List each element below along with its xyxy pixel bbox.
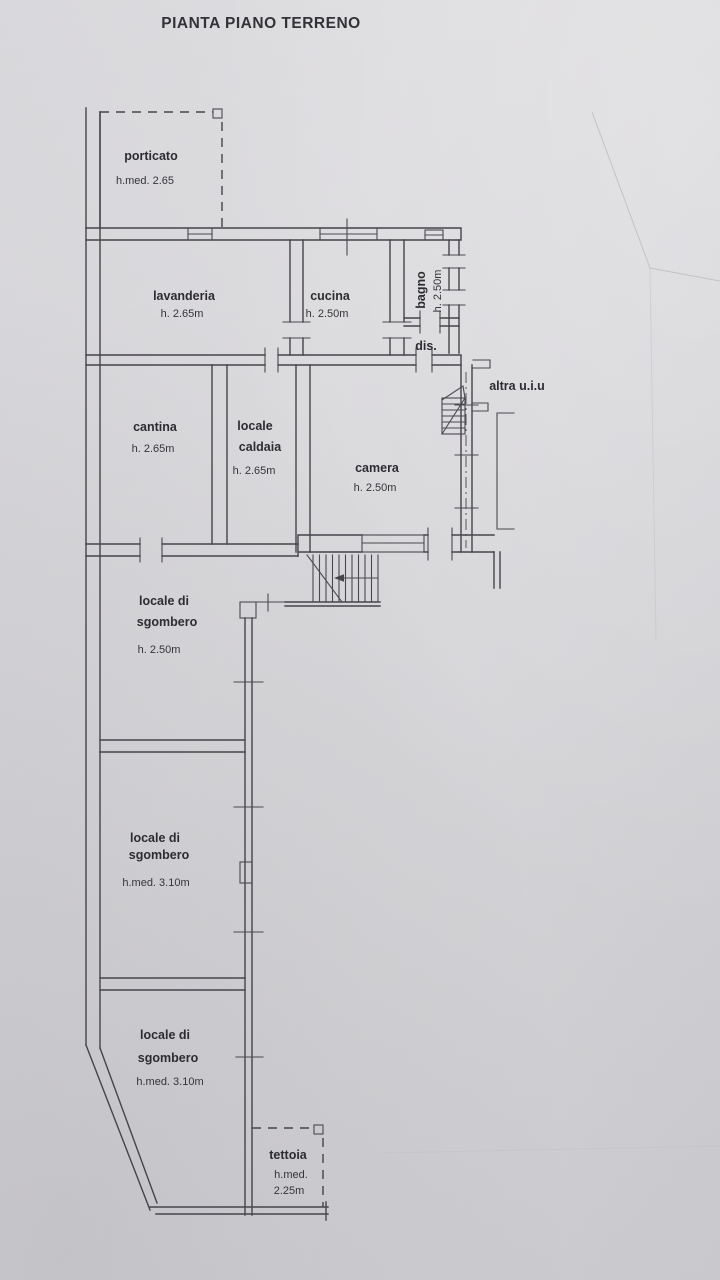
row2-bottom-wall bbox=[86, 528, 500, 588]
room-height: h.med. bbox=[274, 1169, 308, 1181]
sgombero-column-walls bbox=[100, 618, 263, 1215]
room-height: h. 2.50m bbox=[354, 482, 397, 494]
room-name: porticato bbox=[124, 149, 178, 163]
room-height: h. 2.50m bbox=[432, 270, 444, 313]
room-name: bagno bbox=[414, 271, 428, 309]
room-name: sgombero bbox=[138, 1051, 199, 1065]
floor-plan-svg: PIANTA PIANO TERRENO bbox=[0, 0, 720, 1280]
room-height: h. 2.65m bbox=[132, 443, 175, 455]
page-title: PIANTA PIANO TERRENO bbox=[161, 15, 360, 32]
top-exterior-wall bbox=[86, 219, 461, 255]
main-stair bbox=[240, 555, 380, 618]
room-label-tettoia: tettoia h.med. 2.25m bbox=[269, 1148, 308, 1197]
room-name: locale bbox=[237, 419, 272, 433]
room-label-lavanderia: lavanderia h. 2.65m bbox=[153, 289, 216, 320]
room-name: lavanderia bbox=[153, 289, 216, 303]
room-name: locale di bbox=[140, 1028, 190, 1042]
room-height: h.med. 2.65 bbox=[116, 175, 174, 187]
room-name: cucina bbox=[310, 289, 351, 303]
window-symbol bbox=[188, 228, 212, 240]
room-name: sgombero bbox=[129, 848, 190, 862]
room-name: dis. bbox=[415, 339, 437, 353]
room-height: h. 2.65m bbox=[161, 308, 204, 320]
room-label-porticato: porticato h.med. 2.65 bbox=[116, 149, 178, 187]
room-label-camera: camera h. 2.50m bbox=[354, 461, 400, 494]
room-name: cantina bbox=[133, 420, 178, 434]
wall-pillar bbox=[240, 862, 252, 883]
room-height: h. 2.50m bbox=[138, 644, 181, 656]
stair-newel bbox=[240, 602, 256, 618]
room-label-sgombero-3: locale di sgombero h.med. 3.10m bbox=[136, 1028, 203, 1088]
room-height: h.med. 3.10m bbox=[122, 877, 189, 889]
porticato-outline bbox=[86, 108, 222, 228]
label-altra-uiu: altra u.i.u bbox=[489, 379, 545, 393]
window-symbol bbox=[320, 219, 377, 255]
room-height: h. 2.50m bbox=[306, 308, 349, 320]
room-name: caldaia bbox=[239, 440, 282, 454]
adjacent-unit-label: altra u.i.u bbox=[489, 379, 545, 393]
scanned-page: PIANTA PIANO TERRENO bbox=[0, 0, 720, 1280]
room-label-sgombero-2: locale di sgombero h.med. 3.10m bbox=[122, 831, 189, 889]
room-label-locale-caldaia: locale caldaia h. 2.65m bbox=[233, 419, 283, 477]
room-name: tettoia bbox=[269, 1148, 308, 1162]
room-label-dis: dis. bbox=[415, 339, 437, 353]
window-symbol bbox=[362, 535, 424, 552]
room-label-bagno: bagno h. 2.50m bbox=[414, 270, 444, 313]
room-name: sgombero bbox=[137, 615, 198, 629]
room-height: h.med. 3.10m bbox=[136, 1076, 203, 1088]
room-height: 2.25m bbox=[274, 1185, 305, 1197]
room-height: h. 2.65m bbox=[233, 465, 276, 477]
room-label-sgombero-1: locale di sgombero h. 2.50m bbox=[137, 594, 198, 656]
room-name: locale di bbox=[139, 594, 189, 608]
room-label-cantina: cantina h. 2.65m bbox=[132, 420, 178, 455]
room-name: locale di bbox=[130, 831, 180, 845]
window-symbol bbox=[425, 230, 443, 240]
row1-bottom-wall bbox=[86, 348, 461, 372]
paper-crease bbox=[382, 112, 720, 1153]
room-name: camera bbox=[355, 461, 400, 475]
left-exterior-wall bbox=[86, 112, 328, 1220]
room-label-cucina: cucina h. 2.50m bbox=[306, 289, 351, 320]
row2-walls bbox=[212, 365, 478, 552]
